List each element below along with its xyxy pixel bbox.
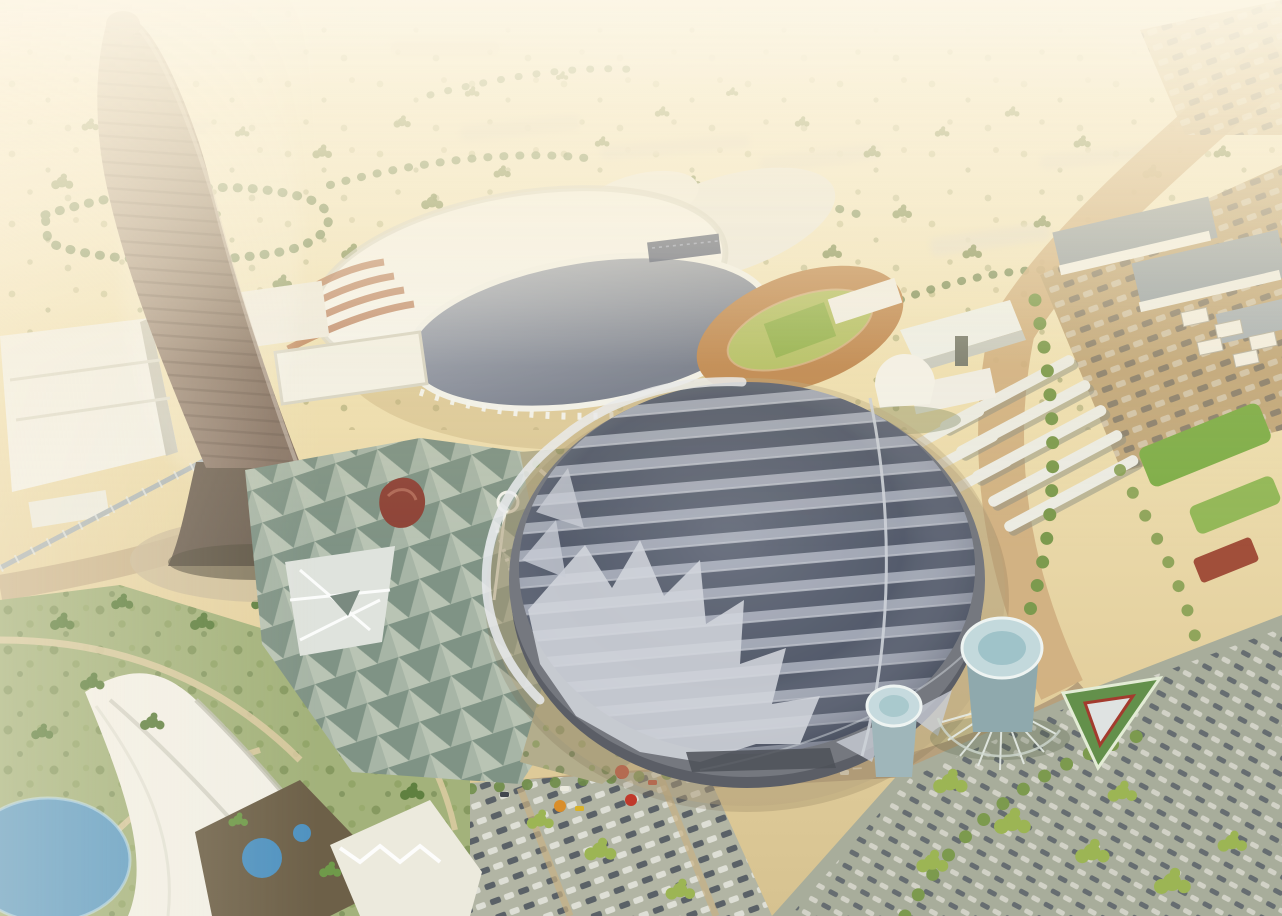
haze-left — [0, 0, 1282, 916]
aerial-rendering — [0, 0, 1282, 916]
scene-svg — [0, 0, 1282, 916]
